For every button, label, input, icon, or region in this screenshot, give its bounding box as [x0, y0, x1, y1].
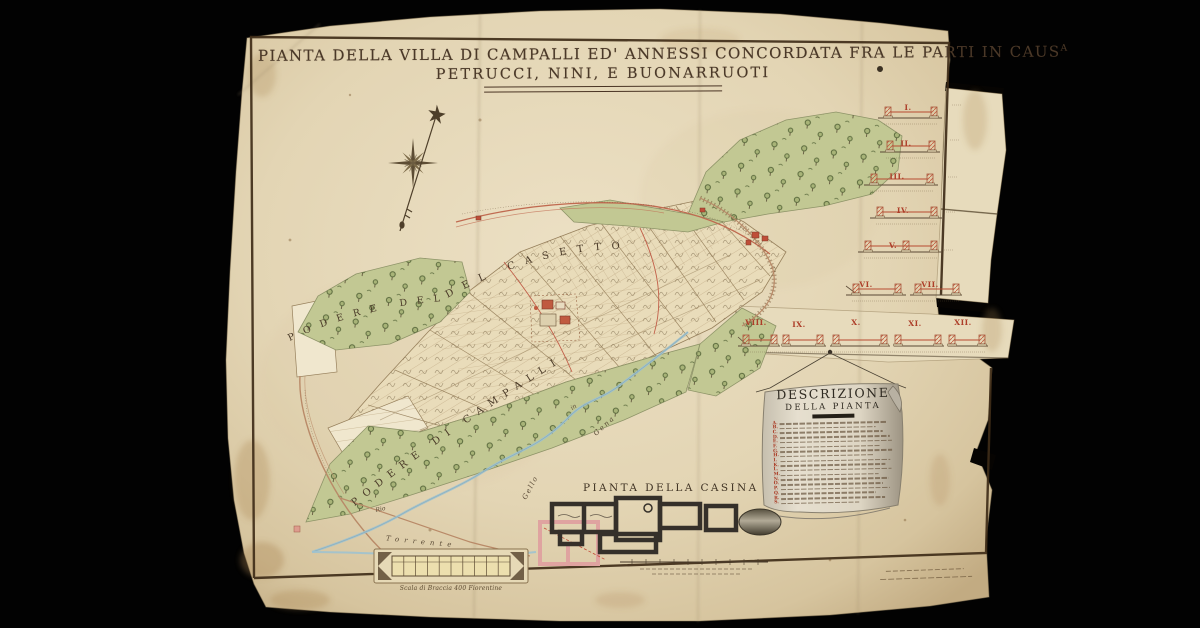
flap-bottom-row: [736, 306, 1014, 362]
legend-title: DESCRIZIONE: [769, 385, 897, 403]
legend-subtitle: DELLA PIANTA: [769, 401, 897, 414]
legend-scribble: [781, 501, 859, 504]
section-label-4: IV.: [897, 206, 909, 215]
legend-panel: DESCRIZIONE DELLA PIANTA A. B. C. D. E. …: [769, 385, 899, 507]
section-label-12: XII.: [954, 318, 971, 327]
scale-caption: Scala di Braccia 400 Fiorentine: [374, 585, 528, 592]
casina-plan-title: PIANTA DELLA CASINA: [583, 482, 723, 494]
scroll-roll: [739, 509, 781, 535]
scale-bar: [374, 549, 528, 583]
map-canvas: DEL CASETTO PODERE DI CAMPALLI PODERE DE…: [0, 0, 1200, 628]
section-label-2: II.: [900, 139, 911, 148]
title-underline: [484, 85, 722, 92]
section-label-6: VI.: [859, 280, 872, 289]
section-label-9: IX.: [792, 320, 805, 329]
legend-title-rule: [812, 414, 854, 418]
section-label-7: VII.: [921, 280, 938, 289]
title-superscript: A: [1061, 44, 1069, 54]
map-title-line1: PIANTA DELLA VILLA DI CAMPALLI ED' ANNES…: [258, 43, 948, 65]
section-label-11: XI.: [908, 319, 921, 328]
section-label-10: X.: [851, 318, 860, 327]
section-label-8: VIII.: [745, 318, 766, 327]
section-label-3: III.: [889, 172, 904, 181]
section-label-1: I.: [904, 103, 911, 112]
section-label-5: V.: [889, 241, 897, 250]
map-title-line2: PETRUCCI, NINI, E BUONARRUOTI: [258, 64, 948, 84]
map-title: PIANTA DELLA VILLA DI CAMPALLI ED' ANNES…: [258, 43, 948, 94]
antique-map-photo: DEL CASETTO PODERE DI CAMPALLI PODERE DE…: [0, 0, 1200, 628]
